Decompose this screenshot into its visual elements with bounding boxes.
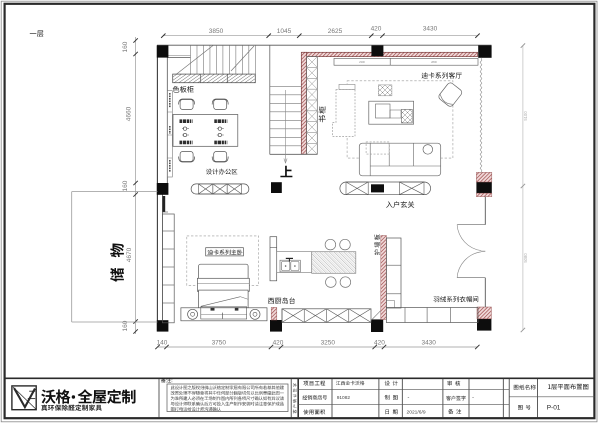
svg-text:160: 160 <box>122 180 129 191</box>
svg-text:420: 420 <box>371 26 382 33</box>
svg-text:2625: 2625 <box>328 28 343 35</box>
svg-text:-: - <box>472 395 474 401</box>
svg-text:5080: 5080 <box>523 253 528 263</box>
svg-text:3430: 3430 <box>421 339 436 346</box>
svg-text:2800: 2800 <box>431 60 437 64</box>
svg-text:2300: 2300 <box>359 60 365 64</box>
svg-text:140: 140 <box>157 339 168 346</box>
svg-text:91082: 91082 <box>337 395 351 401</box>
svg-text:2021/6/9: 2021/6/9 <box>407 409 426 415</box>
svg-text:3430: 3430 <box>423 26 438 33</box>
svg-text:P-01: P-01 <box>547 404 561 411</box>
svg-text:420: 420 <box>273 339 284 346</box>
svg-text:5100: 5100 <box>523 111 528 121</box>
svg-text:420: 420 <box>374 339 385 346</box>
svg-text:3250: 3250 <box>321 339 336 346</box>
svg-text:-: - <box>408 395 410 401</box>
svg-text:1045: 1045 <box>277 28 292 35</box>
svg-text:3850: 3850 <box>209 28 224 35</box>
svg-text:160: 160 <box>122 41 129 52</box>
svg-text:4670: 4670 <box>126 247 133 262</box>
svg-text:4660: 4660 <box>126 106 133 121</box>
svg-text:3750: 3750 <box>212 339 227 346</box>
